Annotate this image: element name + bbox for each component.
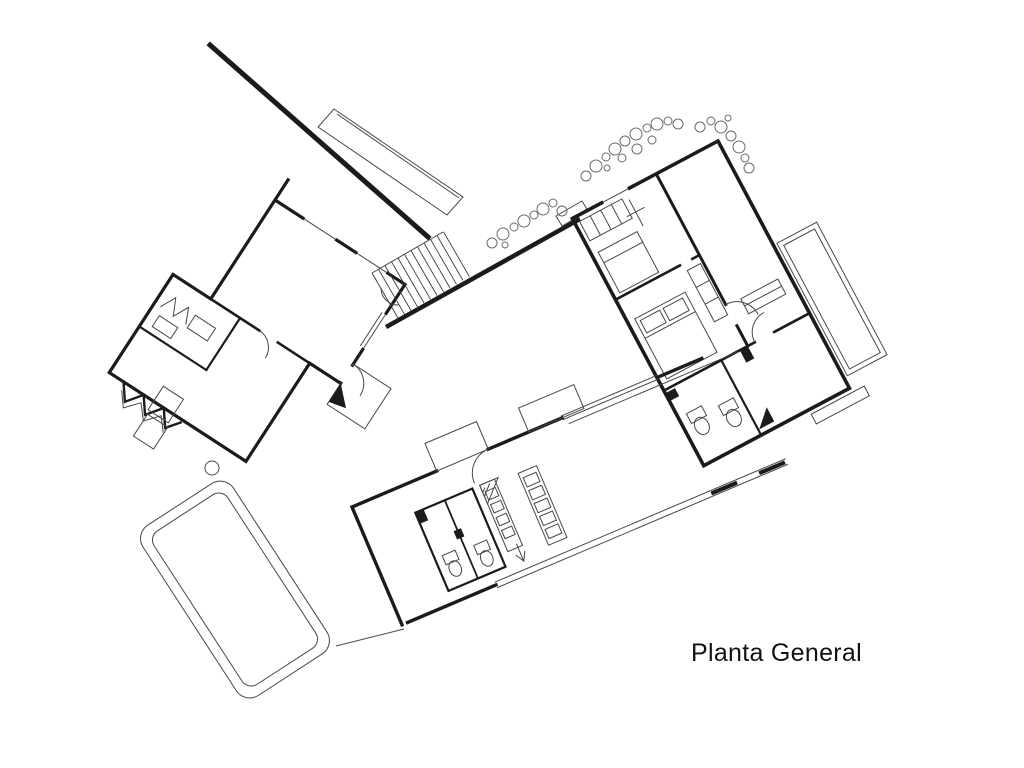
- toilet: [478, 549, 495, 568]
- sawtooth-detail: [112, 382, 183, 439]
- caption: Planta General: [691, 638, 862, 668]
- door-leaf: [329, 383, 356, 411]
- swimming-pool: [134, 475, 335, 704]
- entry-arrow: [512, 542, 529, 563]
- main-house-partitions: [573, 143, 809, 391]
- main-house-bathroom: [663, 346, 788, 466]
- toilet: [447, 559, 464, 578]
- door-arc: [248, 331, 276, 359]
- path-line: [336, 629, 404, 646]
- vegetation-bubbles: [487, 115, 754, 248]
- guest-bathroom-fixtures: [149, 293, 218, 356]
- service-wing: [340, 316, 788, 628]
- guest-house-partitions: [139, 274, 309, 415]
- door-arc: [464, 449, 498, 483]
- bedroom-2: [626, 264, 741, 379]
- boundary-wall: [210, 45, 428, 237]
- slide: Planta General: [0, 0, 1024, 768]
- staircase: [372, 232, 470, 318]
- guest-house: [97, 155, 456, 524]
- main-house: [571, 118, 900, 480]
- kitchen: [480, 462, 567, 561]
- roof-monitor: [519, 385, 584, 432]
- planter-circle: [205, 461, 219, 475]
- floor-plan-drawing: [0, 0, 1024, 768]
- door-arc: [744, 313, 774, 343]
- desk: [741, 279, 786, 314]
- closet-tee: [620, 195, 652, 231]
- roof-monitor: [425, 422, 488, 471]
- entry-porch: [327, 364, 391, 429]
